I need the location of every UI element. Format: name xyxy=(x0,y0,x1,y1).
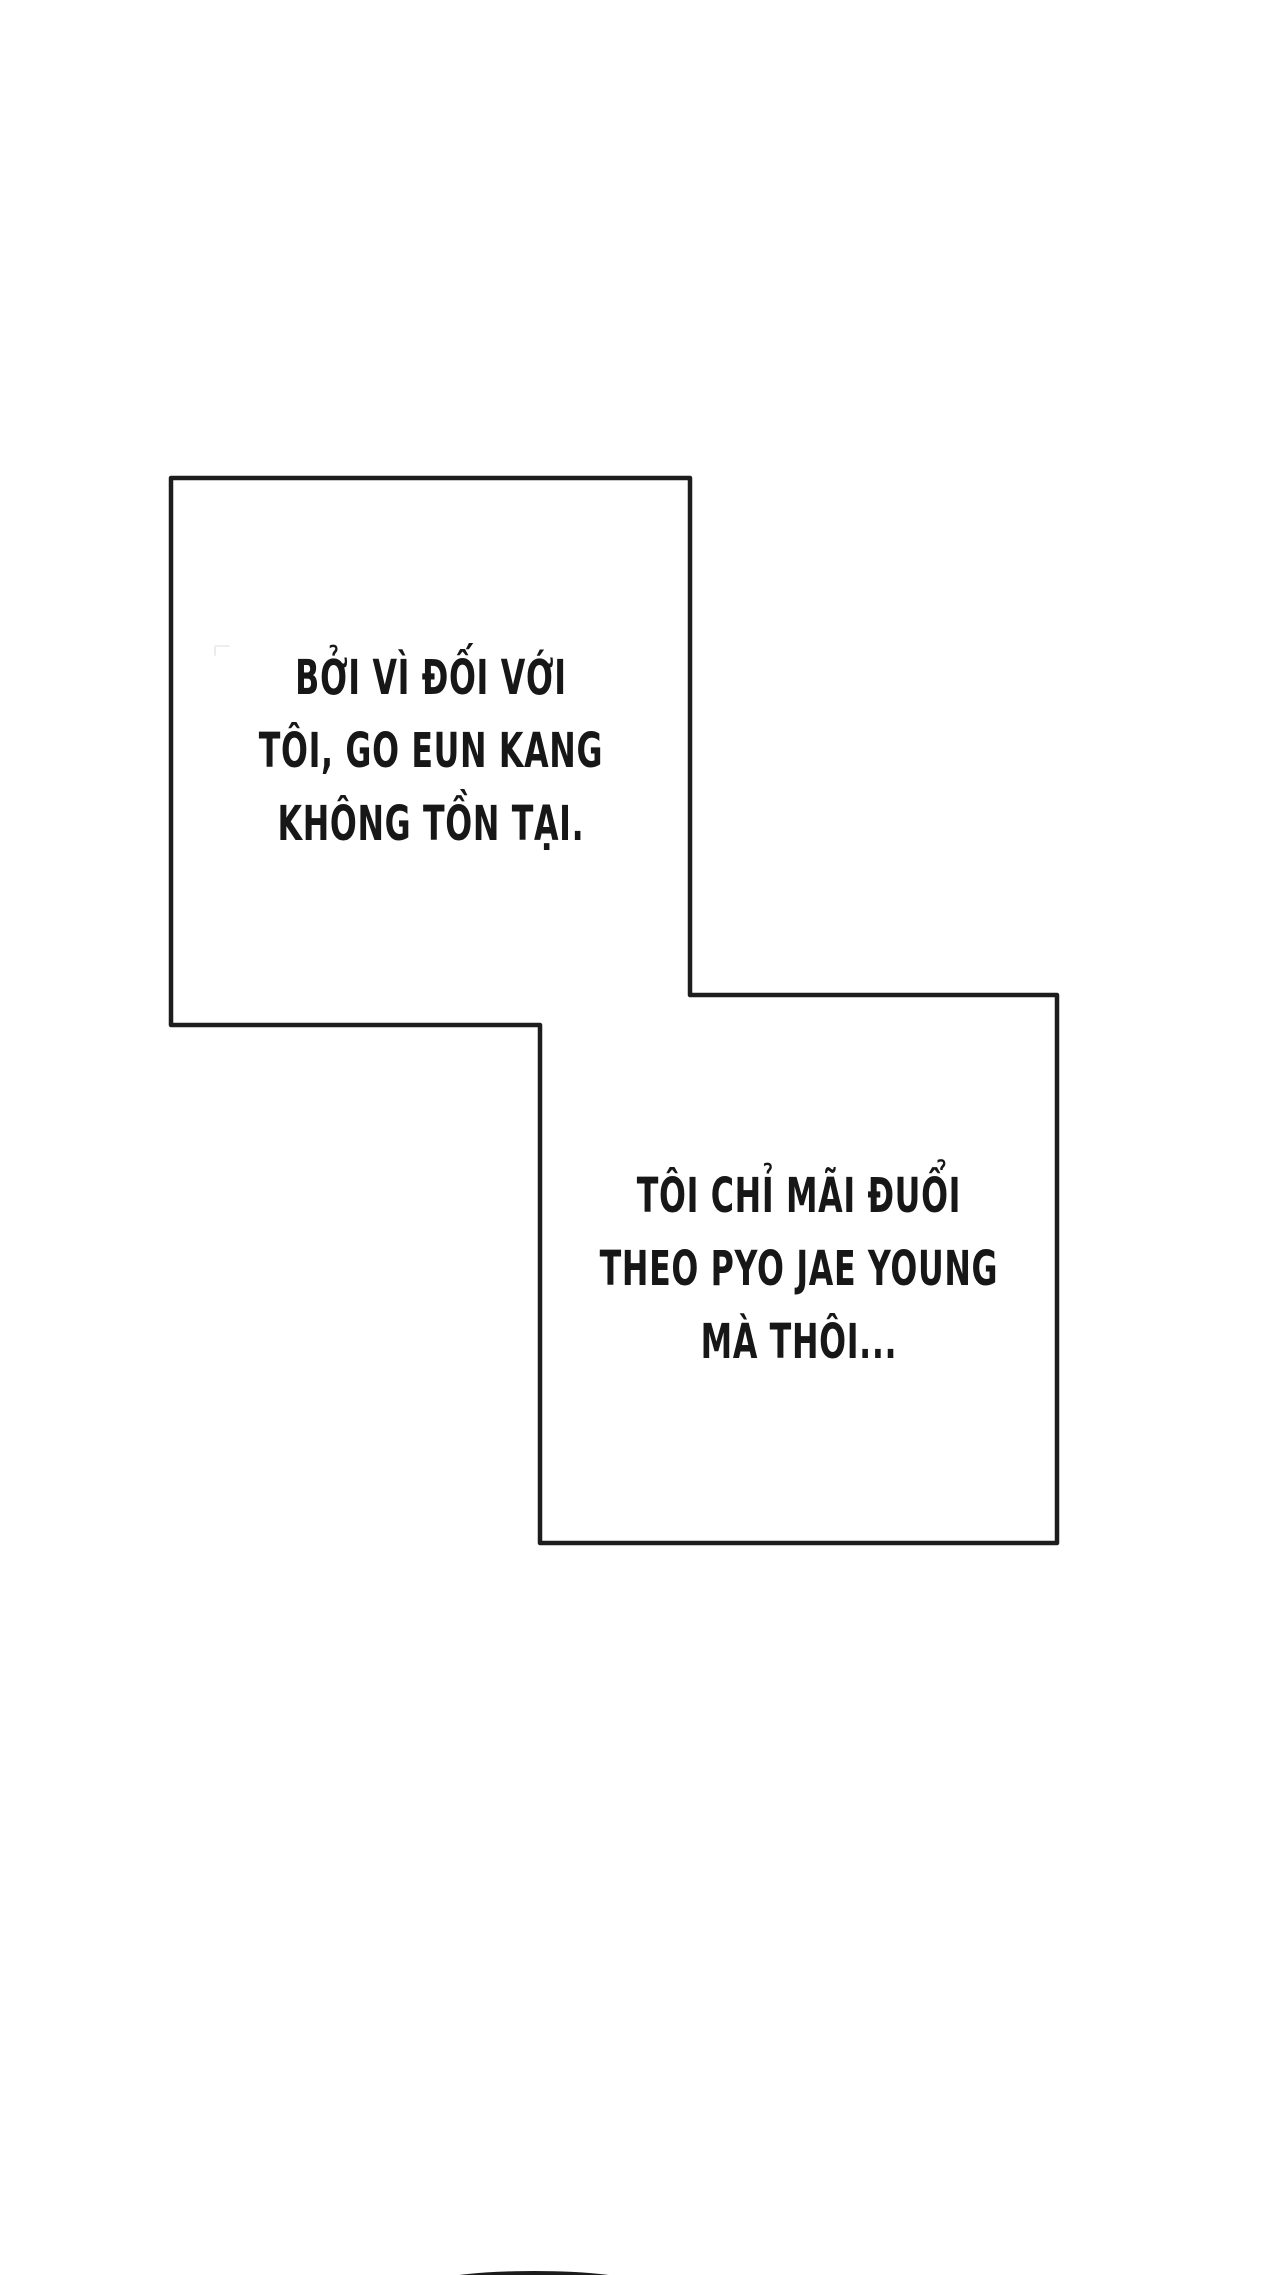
narration-box-2: TÔI CHỈ MÃI ĐUỔI THEO PYO JAE YOUNG MÀ T… xyxy=(540,999,1057,1539)
narration-line: KHÔNG TỒN TẠI. xyxy=(258,788,602,861)
narration-line: TÔI, GO EUN KANG xyxy=(258,715,602,788)
narration-line: TÔI CHỈ MÃI ĐUỔI xyxy=(599,1160,998,1233)
narration-box-1: BỞI VÌ ĐỐI VỚI TÔI, GO EUN KANG KHÔNG TỒ… xyxy=(171,482,690,1021)
narration-line: BỞI VÌ ĐỐI VỚI xyxy=(258,642,602,715)
narration-box-1-text: BỞI VÌ ĐỐI VỚI TÔI, GO EUN KANG KHÔNG TỒ… xyxy=(258,642,602,861)
narration-box-2-text: TÔI CHỈ MÃI ĐUỔI THEO PYO JAE YOUNG MÀ T… xyxy=(599,1160,998,1379)
narration-line: MÀ THÔI... xyxy=(599,1306,998,1379)
narration-line: THEO PYO JAE YOUNG xyxy=(599,1233,998,1306)
webtoon-page: BỞI VÌ ĐỐI VỚI TÔI, GO EUN KANG KHÔNG TỒ… xyxy=(0,0,1280,2275)
print-smudge-artifact xyxy=(214,645,230,656)
